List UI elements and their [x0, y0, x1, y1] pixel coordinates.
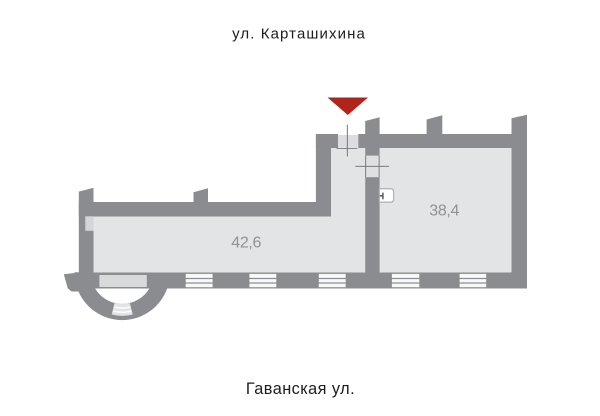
svg-text:38,4: 38,4	[429, 203, 459, 220]
svg-text:ул. Карташихина: ул. Карташихина	[232, 25, 366, 42]
svg-text:42,6: 42,6	[231, 235, 261, 252]
svg-text:Гаванская ул.: Гаванская ул.	[246, 380, 355, 398]
